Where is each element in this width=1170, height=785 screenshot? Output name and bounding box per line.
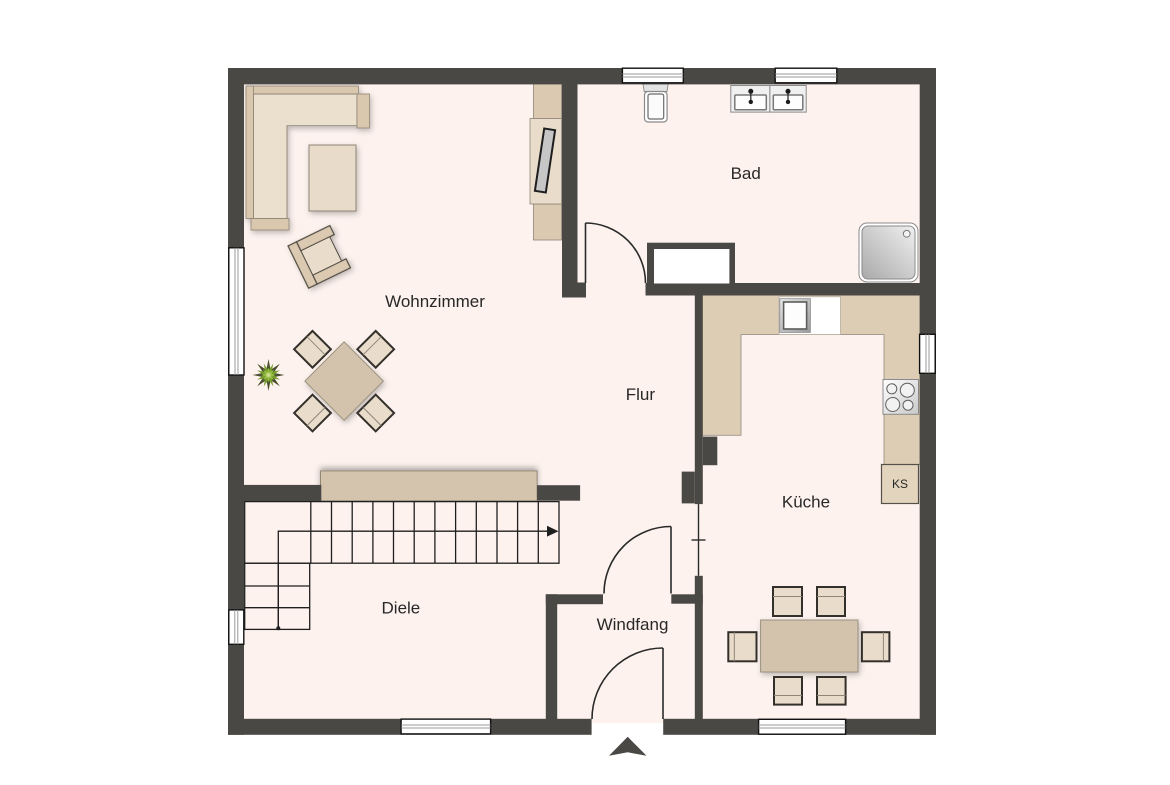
svg-text:Windfang: Windfang xyxy=(597,615,669,634)
svg-text:Wohnzimmer: Wohnzimmer xyxy=(385,292,485,311)
svg-text:Flur: Flur xyxy=(626,385,656,404)
svg-text:Küche: Küche xyxy=(782,493,830,512)
svg-text:KS: KS xyxy=(892,477,908,491)
svg-text:Diele: Diele xyxy=(382,599,421,618)
svg-text:Bad: Bad xyxy=(731,164,761,183)
